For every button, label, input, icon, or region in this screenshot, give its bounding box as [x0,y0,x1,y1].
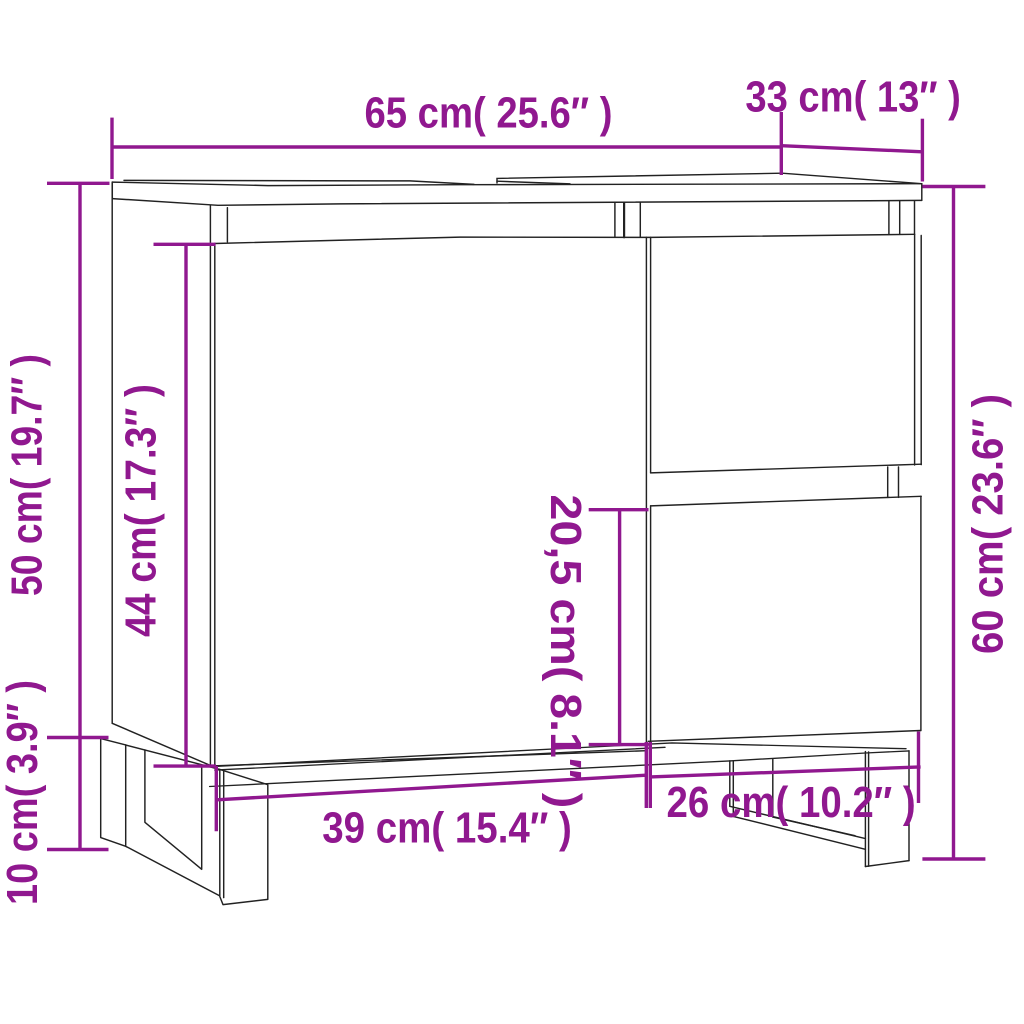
svg-text:60 cm( 23.6″ ): 60 cm( 23.6″ ) [964,394,1013,654]
svg-text:8.1″ ): 8.1″ ) [541,693,590,808]
svg-text:10 cm( 3.9″ ): 10 cm( 3.9″ ) [0,680,47,905]
svg-text:50 cm( 19.7″ ): 50 cm( 19.7″ ) [3,354,52,596]
svg-text:39 cm( 15.4″ ): 39 cm( 15.4″ ) [322,804,572,853]
svg-text:44 cm( 17.3″ ): 44 cm( 17.3″ ) [117,384,166,637]
svg-text:33 cm( 13″ ): 33 cm( 13″ ) [745,72,961,121]
svg-text:26 cm( 10.2″ ): 26 cm( 10.2″ ) [667,778,916,827]
svg-text:65 cm( 25.6″ ): 65 cm( 25.6″ ) [365,89,613,138]
svg-text:20,5 cm(: 20,5 cm( [541,494,590,681]
